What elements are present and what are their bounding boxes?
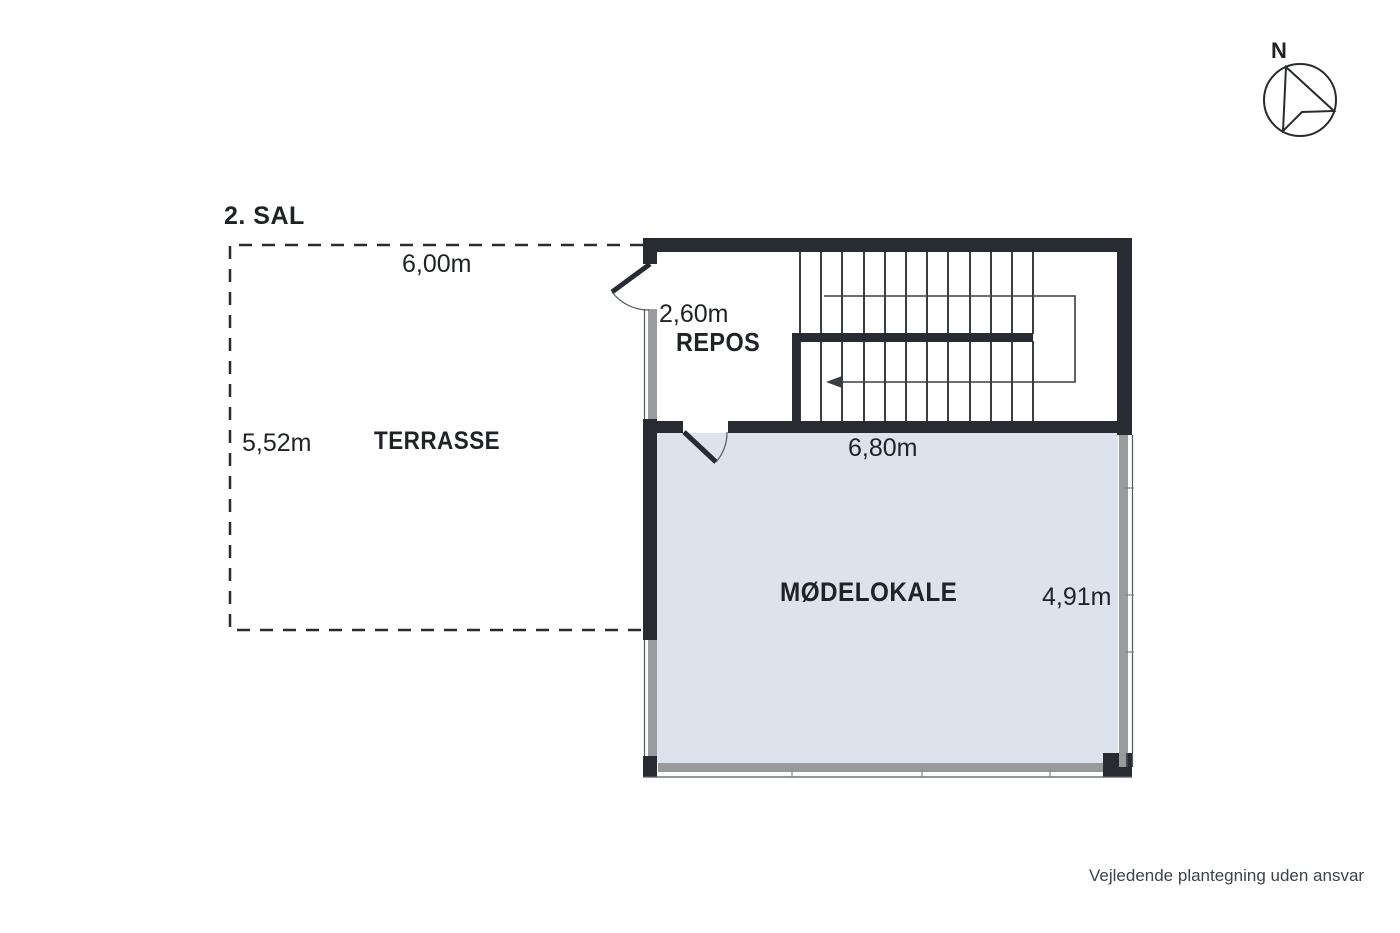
wall-mid-left [643, 421, 683, 433]
wall-left-solid [643, 433, 657, 640]
terrasse-height-dimension: 5,52m [242, 431, 311, 456]
stair-stringer-horizontal [792, 333, 1033, 342]
repos-room-name: REPOS [676, 329, 760, 355]
wall-left-top-stub [643, 238, 657, 264]
floor-title: 2. SAL [224, 204, 305, 229]
wall-right-upper [1117, 238, 1132, 435]
wall-mid-right [728, 421, 1132, 433]
window-left-repos [643, 309, 657, 419]
compass-north-label: N [1271, 40, 1287, 62]
entry-door-swing-arc [612, 292, 649, 310]
moedelokale-room-name: MØDELOKALE [780, 579, 957, 606]
floor-plan-drawing [0, 0, 1400, 933]
compass-circle [1264, 64, 1336, 136]
moedelokale-height-dimension: 4,91m [1042, 585, 1111, 610]
floor-plan-page: 2. SAL 6,00m 5,52m TERRASSE 2,60m REPOS … [0, 0, 1400, 933]
stair-upper-flight [800, 252, 1033, 334]
window-left-meeting-room [643, 640, 657, 756]
wall-left-bottom-corner [643, 756, 657, 777]
window-right-meeting-room [1119, 435, 1134, 767]
stair-stringer-vertical [792, 333, 800, 421]
entry-door-leaf [612, 264, 650, 292]
wall-top [643, 238, 1132, 252]
wall-bottom-right-corner [1103, 753, 1132, 777]
window-bottom-meeting-room [643, 763, 1132, 778]
entry-door [612, 264, 650, 310]
compass [1264, 64, 1336, 136]
moedelokale-width-dimension: 6,80m [848, 436, 917, 461]
disclaimer-text: Vejledende plantegning uden ansvar [1089, 867, 1364, 884]
repos-width-dimension: 2,60m [659, 302, 728, 327]
stair-direction-arrow [826, 376, 842, 388]
terrasse-room-name: TERRASSE [374, 429, 500, 454]
terrasse-width-dimension: 6,00m [402, 252, 471, 277]
